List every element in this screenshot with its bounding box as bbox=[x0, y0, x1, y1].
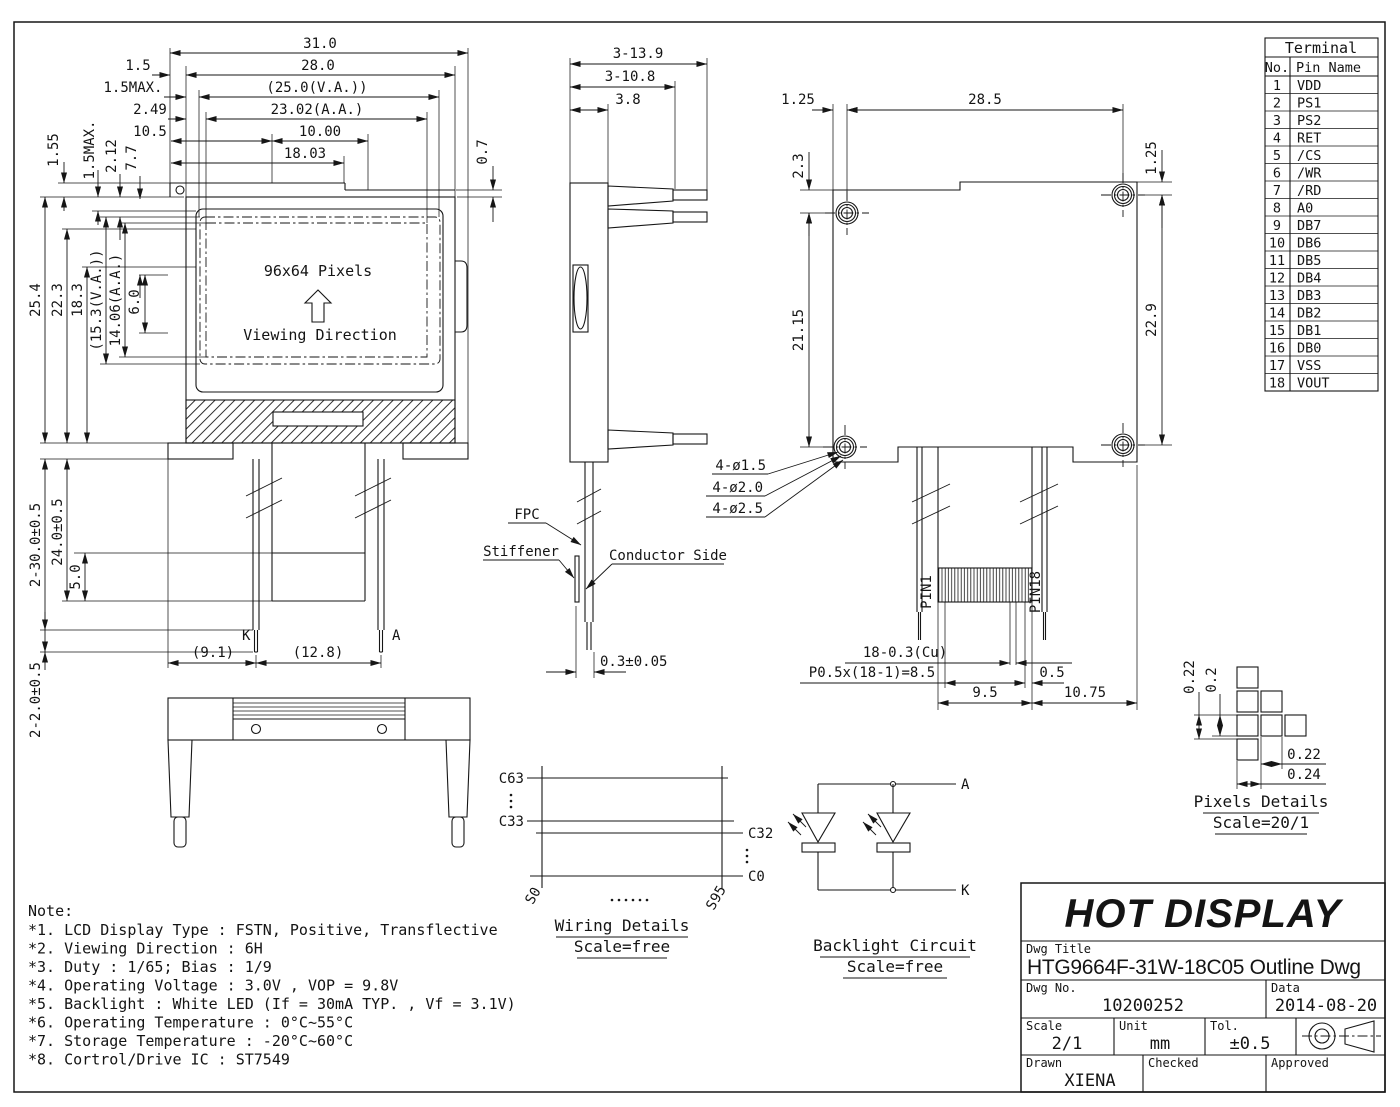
terminal-pin-no: 5 bbox=[1273, 148, 1281, 164]
dim-label: 1.5 bbox=[125, 58, 150, 74]
mount-hole bbox=[1101, 423, 1145, 467]
terminal-pin-no: 17 bbox=[1269, 358, 1285, 374]
dim-label: 24.0±0.5 bbox=[50, 498, 66, 565]
terminal-pin-no: 7 bbox=[1273, 183, 1281, 199]
note-line: *7. Storage Temperature : -20°C~60°C bbox=[28, 1032, 353, 1050]
date-label: Data bbox=[1271, 981, 1300, 995]
unit-label: Unit bbox=[1119, 1019, 1148, 1033]
dim-label: (25.0(V.A.)) bbox=[266, 80, 367, 96]
drawn-label: Drawn bbox=[1026, 1056, 1062, 1070]
pixels-details-scale: Scale=20/1 bbox=[1213, 813, 1309, 832]
tol-value: ±0.5 bbox=[1230, 1034, 1271, 1054]
projection-symbol-icon bbox=[1302, 1021, 1381, 1052]
dim-label: 5.0 bbox=[68, 564, 84, 589]
wiring-node-label: C32 bbox=[748, 826, 773, 842]
bottom-view bbox=[168, 698, 470, 847]
dwg-no-value: 10200252 bbox=[1102, 996, 1184, 1016]
wiring-node-label: C33 bbox=[499, 814, 524, 830]
dim-label: 9.5 bbox=[972, 685, 997, 701]
wiring-details-title: Wiring Details bbox=[555, 916, 690, 935]
scale-label: Scale bbox=[1026, 1019, 1062, 1033]
stiffener-label: Stiffener bbox=[483, 544, 559, 560]
terminal-pin-no: 4 bbox=[1273, 130, 1281, 146]
company-logo-text: HOT DISPLAY bbox=[1065, 892, 1344, 936]
dim-label: 1.5MAX. bbox=[103, 80, 162, 96]
terminal-pin-name: /WR bbox=[1297, 165, 1322, 181]
stiffener-shape bbox=[575, 556, 579, 602]
dim-label: P0.5x(18-1)=8.5 bbox=[809, 665, 935, 681]
pin1-label: PIN1 bbox=[919, 575, 935, 609]
dim-label: 10.00 bbox=[299, 124, 341, 140]
dim-label: 14.06(A.A.) bbox=[108, 254, 124, 347]
approved-label: Approved bbox=[1271, 1056, 1329, 1070]
mount-hole bbox=[252, 725, 261, 734]
dwg-no-label: Dwg No. bbox=[1026, 981, 1077, 995]
fpc-label: FPC bbox=[514, 507, 539, 523]
terminal-pin-no: 12 bbox=[1269, 270, 1285, 286]
front-view: 96x64 Pixels Viewing Direction K A 31.0 … bbox=[28, 36, 502, 738]
dim-label: 2.3 bbox=[791, 153, 807, 178]
wiring-details: C63 C33 C32 C0 S0 S95 Wiring Details Sca… bbox=[499, 766, 774, 958]
title-block: HOT DISPLAY Dwg Title HTG9664F-31W-18C05… bbox=[1021, 883, 1385, 1092]
dim-label: 7.7 bbox=[124, 145, 140, 170]
led-icon bbox=[863, 784, 910, 890]
dim-label: 18-0.3(Cu) bbox=[863, 645, 947, 661]
terminal-pin-no: 16 bbox=[1269, 340, 1285, 356]
terminal-pin-no: 11 bbox=[1269, 253, 1285, 269]
terminal-pin-name: DB4 bbox=[1297, 270, 1321, 286]
terminal-pin-name: RET bbox=[1297, 130, 1321, 146]
viewing-direction-label: Viewing Direction bbox=[243, 326, 397, 344]
terminal-pin-name: PS2 bbox=[1297, 113, 1321, 129]
backlight-window bbox=[273, 412, 363, 426]
back-body bbox=[833, 182, 1137, 462]
unit-value: mm bbox=[1150, 1034, 1170, 1054]
drawing-canvas: 96x64 Pixels Viewing Direction K A 31.0 … bbox=[0, 0, 1400, 1107]
dim-label: 3-13.9 bbox=[613, 46, 664, 62]
dim-label: 21.15 bbox=[791, 309, 807, 351]
terminal-pin-name: DB7 bbox=[1297, 218, 1321, 234]
terminal-pin-no: 2 bbox=[1273, 95, 1281, 111]
dim-label: (9.1) bbox=[192, 645, 234, 661]
hole-dia-callout: 4-ø1.5 bbox=[715, 458, 766, 474]
terminal-col-no: No. bbox=[1265, 60, 1289, 76]
terminal-pin-name: VOUT bbox=[1297, 375, 1330, 391]
dim-label: 3-10.8 bbox=[605, 69, 656, 85]
note-line: *3. Duty : 1/65; Bias : 1/9 bbox=[28, 958, 272, 976]
tol-label: Tol. bbox=[1210, 1019, 1239, 1033]
pin18-label: PIN18 bbox=[1028, 571, 1044, 613]
wiring-node-label: S95 bbox=[703, 883, 730, 913]
dim-label: 1.25 bbox=[1144, 141, 1160, 175]
display-window bbox=[196, 209, 443, 392]
dim-label: 2.49 bbox=[133, 102, 167, 118]
note-line: *2. Viewing Direction : 6H bbox=[28, 940, 263, 958]
note-line: *8. Cortrol/Drive IC : ST7549 bbox=[28, 1051, 290, 1069]
dim-label: 18.03 bbox=[284, 146, 326, 162]
dim-label: 0.22 bbox=[1287, 747, 1321, 763]
terminal-pin-name: A0 bbox=[1297, 200, 1313, 216]
conductor-side-label: Conductor Side bbox=[609, 548, 727, 564]
dim-label: 0.3±0.05 bbox=[600, 654, 667, 670]
wiring-details-scale: Scale=free bbox=[574, 937, 670, 956]
wiring-node-label: S0 bbox=[522, 885, 544, 908]
dim-label: 0.24 bbox=[1287, 767, 1321, 783]
terminal-pin-no: 15 bbox=[1269, 323, 1285, 339]
dim-label: 25.4 bbox=[28, 283, 44, 317]
terminal-pin-no: 1 bbox=[1273, 78, 1281, 94]
dim-label: 28.0 bbox=[301, 58, 335, 74]
terminal-pin-name: DB6 bbox=[1297, 235, 1321, 251]
terminal-pin-name: DB1 bbox=[1297, 323, 1321, 339]
note-line: *1. LCD Display Type : FSTN, Positive, T… bbox=[28, 921, 498, 939]
terminal-rows: 1VDD2PS13PS24RET5/CS6/WR7/RD8A09DB710DB6… bbox=[1265, 78, 1378, 392]
scale-value: 2/1 bbox=[1052, 1034, 1083, 1054]
note-line: *5. Backlight : White LED (If = 30mA TYP… bbox=[28, 995, 516, 1013]
wiring-node-label: C63 bbox=[499, 771, 524, 787]
dim-label: 0.7 bbox=[475, 139, 491, 164]
terminal-table-title: Terminal bbox=[1285, 39, 1357, 57]
dim-label: 22.3 bbox=[50, 283, 66, 317]
terminal-table: Terminal No. Pin Name 1VDD2PS13PS24RET5/… bbox=[1265, 38, 1378, 391]
dim-label: 0.22 bbox=[1182, 660, 1198, 694]
dim-label: 6.0 bbox=[127, 289, 143, 314]
backlight-circuit-title: Backlight Circuit bbox=[813, 936, 977, 955]
cathode-label: K bbox=[961, 883, 970, 899]
terminal-pin-no: 3 bbox=[1273, 113, 1281, 129]
dim-label: 2.12 bbox=[104, 139, 120, 173]
cathode-pin-label: K bbox=[242, 628, 251, 644]
terminal-pin-name: PS1 bbox=[1297, 95, 1321, 111]
pixels-label: 96x64 Pixels bbox=[264, 262, 372, 280]
dim-label: (12.8) bbox=[293, 645, 344, 661]
anode-pin-label: A bbox=[392, 628, 401, 644]
up-arrow-icon bbox=[305, 290, 331, 322]
side-tab bbox=[455, 261, 467, 332]
terminal-pin-name: /RD bbox=[1297, 183, 1321, 199]
back-view: 1.25 28.5 2.3 1.25 21.15 22.9 4-ø1.5 4-ø… bbox=[706, 92, 1172, 710]
dwg-title-label: Dwg Title bbox=[1026, 942, 1091, 956]
terminal-pin-no: 10 bbox=[1269, 235, 1285, 251]
dim-label: 28.5 bbox=[968, 92, 1002, 108]
hole-dia-callout: 4-ø2.0 bbox=[712, 480, 763, 496]
anode-label: A bbox=[961, 777, 970, 793]
terminal-pin-no: 18 bbox=[1269, 375, 1285, 391]
dim-label: 2-2.0±0.5 bbox=[28, 662, 44, 738]
wiring-node-label: C0 bbox=[748, 869, 765, 885]
dim-label: 1.5MAX. bbox=[82, 120, 98, 179]
side-view: 3-13.9 3-10.8 3.8 FPC Stiffener Conducto… bbox=[483, 46, 727, 678]
terminal-pin-no: 8 bbox=[1273, 200, 1281, 216]
terminal-pin-name: DB3 bbox=[1297, 288, 1321, 304]
side-body bbox=[570, 183, 608, 462]
dim-label: 2-30.0±0.5 bbox=[28, 503, 44, 587]
terminal-pin-name: VDD bbox=[1297, 78, 1321, 94]
dim-label: 10.75 bbox=[1064, 685, 1106, 701]
pixels-details-title: Pixels Details bbox=[1194, 792, 1329, 811]
terminal-col-pin-name: Pin Name bbox=[1296, 60, 1361, 76]
checked-label: Checked bbox=[1148, 1056, 1199, 1070]
note-line: *6. Operating Temperature : 0°C~55°C bbox=[28, 1014, 353, 1032]
hole-dia-callout: 4-ø2.5 bbox=[712, 501, 763, 517]
mount-hole bbox=[378, 725, 387, 734]
dim-label: 23.02(A.A.) bbox=[271, 102, 364, 118]
dim-label: 1.25 bbox=[781, 92, 815, 108]
note-line: *4. Operating Voltage : 3.0V , VOP = 9.8… bbox=[28, 977, 398, 995]
notes-lines: *1. LCD Display Type : FSTN, Positive, T… bbox=[28, 921, 516, 1069]
backlight-circuit: A K Backlight Circuit Scale=free bbox=[788, 777, 977, 978]
backlight-circuit-scale: Scale=free bbox=[847, 957, 943, 976]
terminal-pin-no: 13 bbox=[1269, 288, 1285, 304]
date-value: 2014-08-20 bbox=[1275, 996, 1377, 1016]
terminal-pin-name: DB0 bbox=[1297, 340, 1321, 356]
dim-label: 31.0 bbox=[303, 36, 337, 52]
terminal-pin-name: DB2 bbox=[1297, 305, 1321, 321]
terminal-pin-no: 6 bbox=[1273, 165, 1281, 181]
dim-label: 10.5 bbox=[133, 124, 167, 140]
led-icon bbox=[788, 784, 835, 890]
terminal-pin-no: 9 bbox=[1273, 218, 1281, 234]
dim-label: 18.3 bbox=[70, 283, 86, 317]
dim-label: 0.2 bbox=[1204, 667, 1220, 692]
terminal-pin-name: VSS bbox=[1297, 358, 1321, 374]
dim-label: 3.8 bbox=[615, 92, 640, 108]
tab-hole bbox=[176, 186, 184, 194]
notes-heading: Note: bbox=[28, 902, 73, 920]
terminal-pin-no: 14 bbox=[1269, 305, 1285, 321]
terminal-pin-name: DB5 bbox=[1297, 253, 1321, 269]
dim-label: (15.3(V.A.)) bbox=[89, 249, 105, 350]
terminal-pin-name: /CS bbox=[1297, 148, 1321, 164]
notes: Note: *1. LCD Display Type : FSTN, Posit… bbox=[28, 902, 516, 1069]
dim-label: 1.55 bbox=[46, 133, 62, 167]
fpc-conductor-band bbox=[938, 568, 1032, 602]
drawn-value: XIENA bbox=[1064, 1071, 1115, 1091]
pixels-details: 0.22 0.2 0.22 0.24 Pixels Details Scale=… bbox=[1182, 660, 1328, 834]
dim-label: 22.9 bbox=[1144, 303, 1160, 337]
dim-label: 0.5 bbox=[1039, 665, 1064, 681]
engineering-drawing-sheet: 96x64 Pixels Viewing Direction K A 31.0 … bbox=[0, 0, 1400, 1107]
dwg-title-value: HTG9664F-31W-18C05 Outline Dwg bbox=[1027, 956, 1361, 979]
